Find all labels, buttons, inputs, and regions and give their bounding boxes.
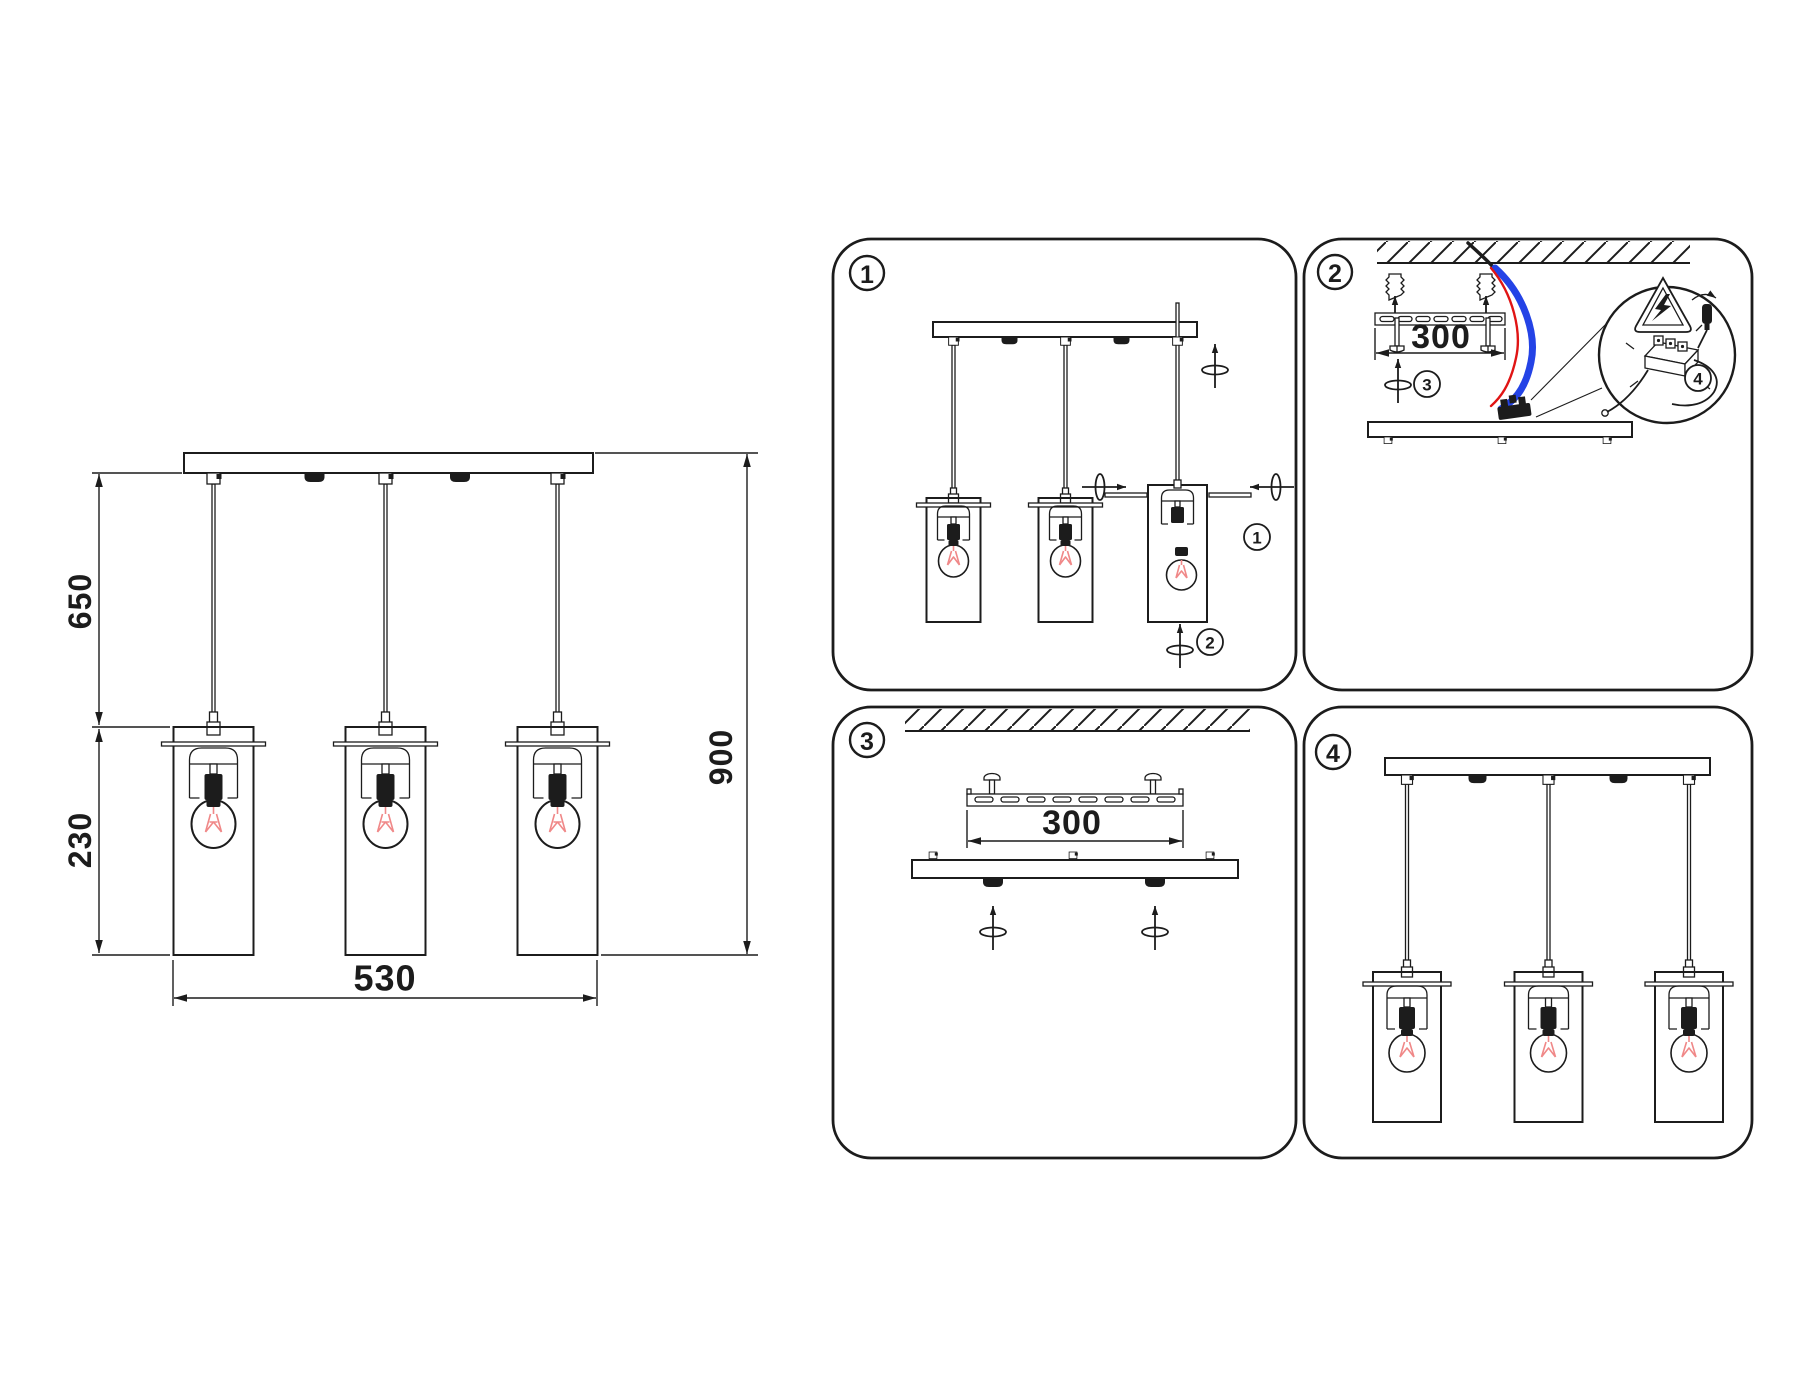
- cord-grip: [1173, 337, 1184, 345]
- ref-number: 3: [1422, 376, 1431, 395]
- dim-label-overall: 900: [703, 729, 739, 785]
- cap-nut: [305, 473, 325, 482]
- suspension-cord: [212, 484, 215, 713]
- cord-grip: [207, 473, 222, 484]
- step-panel-4: 4: [1304, 707, 1752, 1158]
- canopy-bar: [933, 322, 1197, 337]
- plate-stud: [1498, 437, 1507, 444]
- step-panel-2: 2 300 3: [1304, 239, 1752, 690]
- plate-stud: [1384, 437, 1393, 444]
- step-number: 2: [1328, 260, 1342, 288]
- cap-nut: [1610, 775, 1628, 783]
- cord-grip: [1401, 775, 1413, 784]
- instruction-sheet: 650 230 900 530 1: [0, 0, 1800, 1400]
- installation-diagram-svg: 650 230 900 530 1: [0, 0, 1800, 1400]
- dome-nut: [1145, 878, 1165, 887]
- cap-nut: [1114, 337, 1130, 344]
- dome-nut: [983, 878, 1003, 887]
- cord-grip: [949, 337, 960, 345]
- cap-nut: [1002, 337, 1018, 344]
- dimension-900: 900: [595, 453, 758, 955]
- suspension-cord: [1176, 303, 1179, 487]
- cap-nut: [450, 473, 470, 482]
- plate-stud: [1069, 852, 1078, 859]
- pendant-lamp: [506, 712, 610, 955]
- shade-ring-half: [1209, 493, 1251, 497]
- canopy-bar: [1385, 758, 1710, 775]
- dimension-drawing: 650 230 900 530: [62, 453, 758, 1006]
- plate-stud: [929, 852, 938, 859]
- suspension-cord: [1064, 345, 1067, 490]
- step-number: 3: [860, 728, 874, 756]
- dim-label-bracket: 300: [1042, 804, 1102, 842]
- cord-grip: [1683, 775, 1695, 784]
- ref-number: 4: [1693, 370, 1703, 389]
- step-number: 1: [860, 261, 874, 289]
- cord-grip: [1061, 337, 1072, 345]
- ceiling-canopy-bar: [184, 453, 593, 473]
- cord-grip: [551, 473, 566, 484]
- suspension-cord: [1547, 784, 1550, 962]
- suspension-cord: [1688, 784, 1691, 962]
- screwdriver-ferrule: [1705, 324, 1710, 330]
- ref-number: 1: [1252, 529, 1261, 548]
- dim-label-shade: 230: [62, 812, 98, 868]
- cord-grip: [1543, 775, 1555, 784]
- screwdriver-icon: [1702, 304, 1712, 324]
- dim-label-bracket: 300: [1411, 318, 1471, 356]
- step-panel-3: 3 300: [833, 707, 1296, 1158]
- step-panel-1: 1 1 2: [833, 239, 1296, 690]
- dim-label-drop: 650: [62, 573, 98, 629]
- ceiling-hatch: [905, 709, 1250, 731]
- pendant-lamp: [162, 712, 266, 955]
- dim-label-spread: 530: [353, 958, 416, 999]
- panel-frame: [833, 707, 1296, 1158]
- canopy-plate: [1368, 422, 1632, 437]
- ref-number: 2: [1205, 634, 1214, 653]
- suspension-cord: [952, 345, 955, 490]
- canopy-plate: [912, 860, 1238, 878]
- plate-stud: [1603, 437, 1612, 444]
- cap-nut: [1469, 775, 1487, 783]
- dimension-530: 530: [173, 958, 597, 1007]
- shade-ring-half: [1105, 493, 1147, 497]
- bulb-base: [1175, 547, 1188, 556]
- ceiling-hatch: [1377, 241, 1690, 263]
- dimension-650: 650: [62, 473, 182, 727]
- socket-stem: [1175, 501, 1180, 507]
- suspension-cord: [1406, 784, 1409, 962]
- pendant-lamp: [334, 712, 438, 955]
- suspension-cord: [556, 484, 559, 713]
- cord-grip: [379, 473, 394, 484]
- step-number: 4: [1326, 740, 1340, 768]
- lamp-socket: [1171, 507, 1184, 523]
- suspension-cord: [384, 484, 387, 713]
- cord-fitting: [1174, 480, 1181, 488]
- plate-stud: [1206, 852, 1215, 859]
- dimension-230: 230: [62, 729, 170, 955]
